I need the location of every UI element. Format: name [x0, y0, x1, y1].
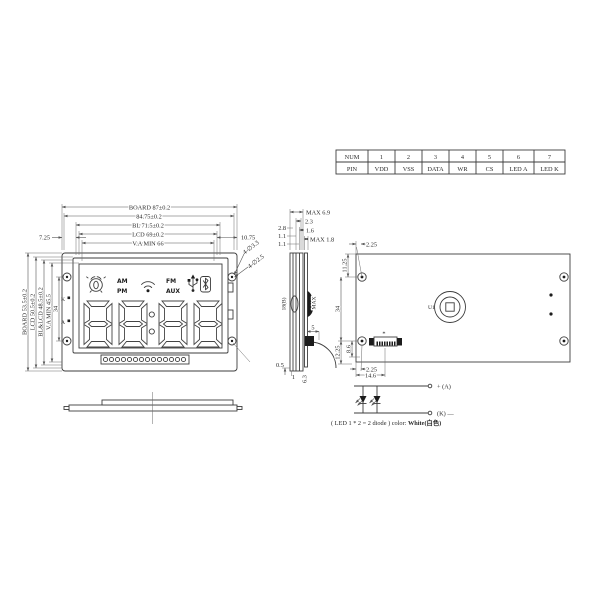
table-header: NUM — [345, 154, 360, 161]
dim-bl-width: BL 71.5±0.2 — [132, 222, 164, 229]
dim-23: 2.3 — [305, 218, 313, 225]
svg-text:VSS: VSS — [403, 166, 415, 173]
colon-dot — [149, 312, 154, 317]
dim-max-total: MAX 6.9 — [306, 209, 330, 216]
dim-top-offset: 2.25 — [366, 241, 377, 248]
svg-text:CS: CS — [486, 166, 494, 173]
svg-text:WR: WR — [457, 166, 468, 173]
engineering-drawing: NUM 1 2 3 4 5 6 7 PIN VDD VSS DATA WR CS… — [0, 0, 600, 600]
dim-comp-5: 5 — [311, 325, 314, 332]
aux-label: AUX — [166, 288, 180, 295]
svg-text:LED A: LED A — [509, 166, 527, 173]
dim-left-offset: 7.25 — [39, 235, 50, 242]
front-view: K A AM PM FM AUX — [22, 204, 266, 371]
dim-lcd-height: LCD 50.5±0.2 — [30, 294, 37, 331]
section-left-label: 18(B) — [281, 297, 288, 310]
pin1-mark: * — [382, 331, 385, 338]
cathode-terminal — [428, 411, 432, 415]
dim-hole-span: 34 — [335, 305, 342, 312]
am-label: AM — [117, 278, 128, 285]
bottom-view — [64, 392, 242, 424]
svg-text:3: 3 — [434, 154, 437, 161]
svg-text:6: 6 — [517, 154, 520, 161]
pin-table: NUM 1 2 3 4 5 6 7 PIN VDD VSS DATA WR CS… — [336, 150, 565, 174]
dim-hole-bottom: 12.25 — [335, 345, 342, 359]
dim-16: 1.6 — [306, 227, 314, 234]
dim-conn-width: 14.6 — [365, 373, 376, 380]
dim-8475: 84.75±0.2 — [136, 213, 162, 220]
dim-va-width: V.A MIN 66 — [132, 240, 163, 247]
dim-board-height: BOARD 53.5±0.2 — [22, 289, 29, 335]
dim-hole-span: 34 — [53, 305, 60, 312]
hole-note-1: 4-∅3.3 — [242, 239, 261, 256]
component-ref: U1 — [428, 305, 435, 311]
anode-label: + (A) — [437, 384, 451, 391]
led-diode — [370, 386, 381, 413]
svg-text:1: 1 — [380, 154, 383, 161]
section-view: MAX 6.9 2.3 1.6 MAX 1.8 2.8 1.1 1.1 18(B… — [276, 209, 336, 383]
dim-max-18: MAX 1.8 — [310, 236, 334, 243]
dim-board-width: BOARD 87±0.2 — [129, 204, 170, 211]
dim-11a: 1.1 — [278, 233, 286, 240]
connector — [101, 355, 189, 364]
dim-depth-63: 6.3 — [302, 375, 309, 383]
led-circuit: + (A) (K) — ( LED 1 * 2 = 2 diode ) colo… — [331, 384, 454, 428]
dim-va-height: V.A MIN 45.5 — [46, 294, 53, 330]
svg-text:2: 2 — [407, 154, 410, 161]
led-diode — [356, 386, 367, 413]
drawing-page: NUM 1 2 3 4 5 6 7 PIN VDD VSS DATA WR CS… — [0, 0, 600, 600]
section-right-label: MAX — [312, 296, 318, 309]
back-connector — [369, 337, 402, 346]
pm-label: PM — [117, 288, 127, 295]
svg-text:VDD: VDD — [375, 166, 389, 173]
hole-note-2: 4-∅2.5 — [247, 253, 266, 270]
terminal-label-a: A — [61, 320, 65, 326]
svg-text:DATA: DATA — [427, 166, 444, 173]
svg-text:5: 5 — [488, 154, 491, 161]
test-point — [549, 293, 552, 296]
anode-terminal — [428, 384, 432, 388]
svg-text:4: 4 — [461, 154, 465, 161]
dim-pin-1: 1 — [292, 374, 295, 381]
colon-dot — [149, 329, 154, 334]
frame-tab — [228, 283, 233, 292]
cathode-label: (K) — — [437, 411, 454, 418]
svg-text:LED K: LED K — [540, 166, 559, 173]
fm-label: FM — [166, 278, 176, 285]
table-header: PIN — [347, 166, 358, 173]
dim-lcd-width: LCD 69±0.2 — [132, 231, 164, 238]
back-view: U1 * 2.25 11.25 34 12.25 8.6 2.25 14.6 — [335, 241, 571, 380]
frame-tab — [228, 310, 233, 319]
connector-section — [305, 336, 314, 346]
dim-hole-top: 11.25 — [342, 259, 349, 273]
led-caption: ( LED 1 * 2 = 2 diode ) color: White(白色) — [331, 418, 441, 427]
test-point — [549, 312, 552, 315]
pcb-section — [305, 253, 308, 367]
dim-28: 2.8 — [278, 225, 286, 232]
dim-right-offset: 10.75 — [241, 235, 255, 242]
dim-bllcd-height: BL&LCD 48.5±0.2 — [38, 287, 45, 336]
terminal-label-k: K — [61, 297, 65, 303]
dim-11b: 1.1 — [278, 241, 286, 248]
dim-conn-height: 8.6 — [346, 345, 353, 353]
svg-text:7: 7 — [548, 154, 551, 161]
